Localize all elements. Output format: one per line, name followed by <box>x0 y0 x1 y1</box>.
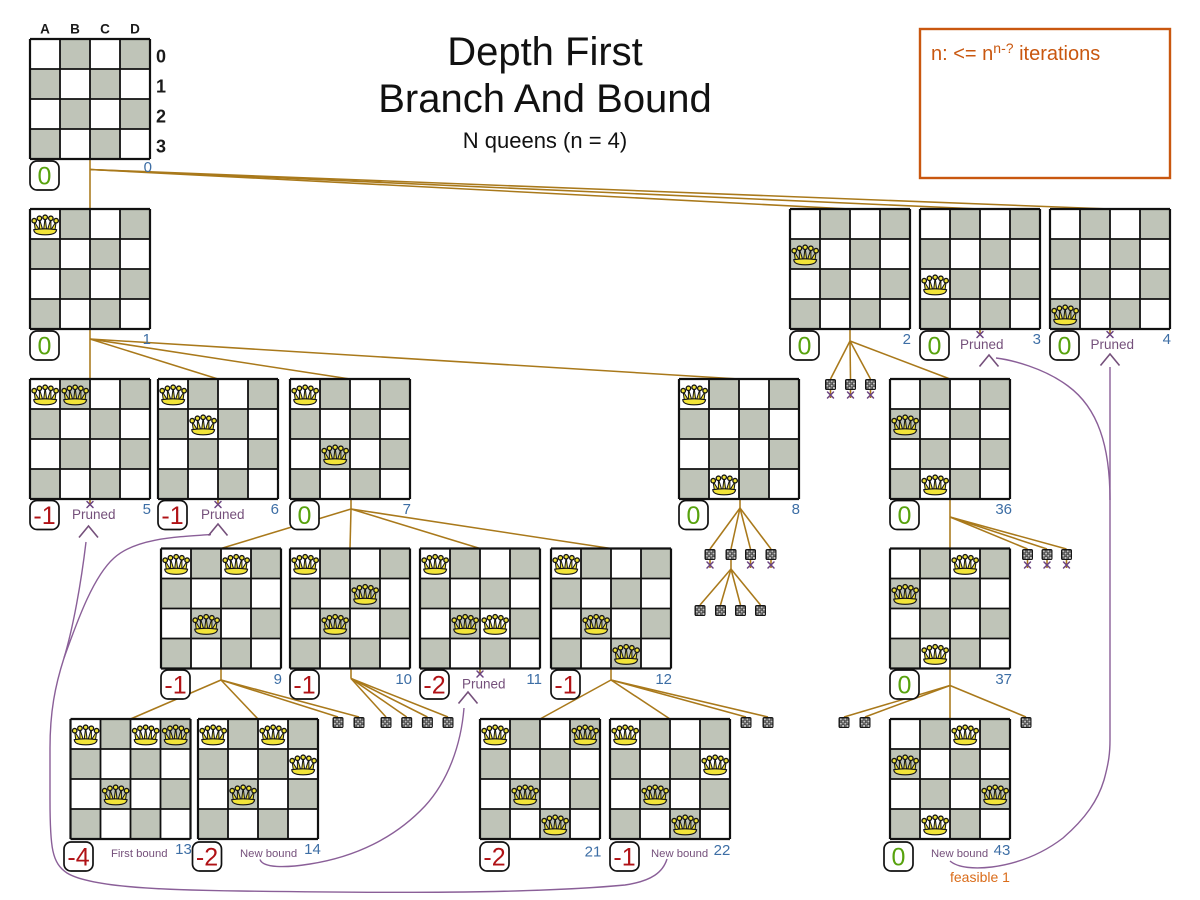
svg-text:-1: -1 <box>613 844 635 872</box>
svg-text:1: 1 <box>156 77 166 97</box>
svg-text:0: 0 <box>38 163 52 191</box>
svg-text:0: 0 <box>687 502 701 530</box>
svg-text:0: 0 <box>1058 333 1072 361</box>
svg-text:0: 0 <box>38 333 52 361</box>
svg-text:New bound: New bound <box>651 848 708 860</box>
svg-text:-1: -1 <box>293 672 315 700</box>
svg-text:1: 1 <box>143 331 151 348</box>
svg-text:37: 37 <box>995 671 1012 688</box>
svg-text:-1: -1 <box>554 672 576 700</box>
svg-text:3: 3 <box>156 137 166 157</box>
svg-text:Depth First: Depth First <box>447 30 643 74</box>
svg-text:5: 5 <box>143 501 151 518</box>
svg-text:2: 2 <box>156 107 166 127</box>
svg-text:-1: -1 <box>164 672 186 700</box>
svg-text:C: C <box>100 22 110 37</box>
svg-text:10: 10 <box>395 671 412 688</box>
svg-text:6: 6 <box>271 501 279 518</box>
svg-text:N queens (n = 4): N queens (n = 4) <box>463 128 627 153</box>
svg-text:0: 0 <box>798 333 812 361</box>
svg-text:3: 3 <box>1033 331 1041 348</box>
svg-text:0: 0 <box>156 47 166 67</box>
svg-text:11: 11 <box>526 671 542 688</box>
svg-text:0: 0 <box>898 672 912 700</box>
svg-text:New bound: New bound <box>931 848 988 860</box>
svg-text:-4: -4 <box>67 844 89 872</box>
svg-text:9: 9 <box>274 671 282 688</box>
svg-text:Pruned: Pruned <box>960 337 1004 352</box>
svg-text:0: 0 <box>928 333 942 361</box>
svg-text:-1: -1 <box>161 502 183 530</box>
svg-text:Pruned: Pruned <box>1091 337 1135 352</box>
svg-text:-2: -2 <box>423 672 445 700</box>
svg-text:-2: -2 <box>483 844 505 872</box>
svg-text:Pruned: Pruned <box>72 507 116 522</box>
svg-text:36: 36 <box>995 501 1012 518</box>
svg-text:-1: -1 <box>33 502 55 530</box>
svg-text:12: 12 <box>655 671 672 688</box>
svg-text:2: 2 <box>903 331 911 348</box>
svg-text:22: 22 <box>714 842 731 859</box>
svg-text:0: 0 <box>898 502 912 530</box>
svg-text:n: <= nn-? iterations: n: <= nn-? iterations <box>931 40 1100 65</box>
svg-text:21: 21 <box>585 844 602 861</box>
svg-text:B: B <box>70 22 80 37</box>
svg-text:Branch And Bound: Branch And Bound <box>378 77 712 121</box>
svg-text:-2: -2 <box>196 844 218 872</box>
svg-text:0: 0 <box>144 159 152 176</box>
svg-text:Pruned: Pruned <box>201 507 245 522</box>
svg-text:0: 0 <box>892 844 906 872</box>
svg-text:14: 14 <box>304 841 321 858</box>
svg-text:New bound: New bound <box>240 848 297 860</box>
svg-text:4: 4 <box>1163 331 1171 348</box>
svg-text:7: 7 <box>403 501 411 518</box>
svg-text:A: A <box>40 22 50 37</box>
svg-text:43: 43 <box>994 842 1011 859</box>
svg-text:feasible 1: feasible 1 <box>950 869 1010 885</box>
svg-text:Pruned: Pruned <box>462 677 506 692</box>
svg-text:13: 13 <box>175 841 192 858</box>
svg-text:First bound: First bound <box>111 848 168 860</box>
svg-text:0: 0 <box>298 502 312 530</box>
svg-text:D: D <box>130 22 140 37</box>
svg-text:8: 8 <box>792 501 800 518</box>
